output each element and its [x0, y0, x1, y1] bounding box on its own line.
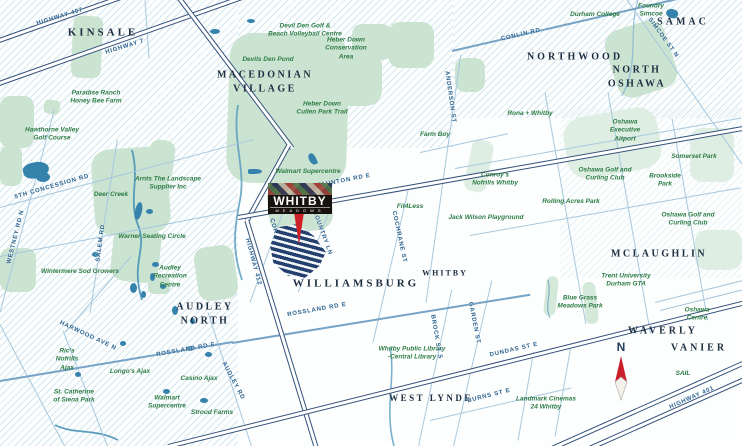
poi-label-heber-down-trail: Heber Down Cullen Park Trail	[296, 101, 347, 118]
poi-label-hawthorne-valley: Hawthorne Valley Golf Course	[25, 127, 79, 144]
poi-label-rolling-acres: Rolling Acres Park	[542, 198, 600, 206]
poi-label-fit4less: Fit4Less	[397, 203, 423, 211]
compass-north-label: N	[606, 340, 636, 354]
logo-title: WHITBY	[268, 195, 332, 207]
poi-label-trent-university: Trent University Durham GTA	[601, 273, 650, 290]
poi-label-sail: SAIL	[676, 370, 691, 378]
poi-label-devils-den-pond: Devils Den Pond	[242, 56, 293, 64]
pond	[36, 172, 50, 182]
area-label-north-oshawa: NORTH OSHAWA	[585, 64, 690, 91]
map-canvas: KINSALE MACEDONIAN VILLAGE NORTHWOOD NOR…	[0, 0, 742, 446]
poi-label-warner-seating: Warner Seating Circle	[118, 233, 185, 241]
poi-label-paradise-ranch: Paradise Ranch Honey Bee Farm	[70, 90, 121, 107]
poi-label-landmark-cinemas: Landmark Cinemas 24 Whitby	[516, 396, 576, 413]
poi-label-audley-recreation: Audley Recreation Centre	[153, 264, 187, 289]
logo-subtitle: MEADOWS	[270, 207, 330, 214]
area-label-macedonian-village: MACEDONIAN VILLAGE	[217, 69, 313, 96]
poi-label-jack-wilson: Jack Wilson Playground	[448, 214, 523, 222]
poi-label-walmart-south: Walmart Supercentre	[148, 395, 186, 412]
poi-label-wintermere: Wintermere Sod Growers	[41, 268, 119, 276]
pond	[163, 389, 170, 394]
poi-label-oshawa-golf-south: Oshawa Golf and Curling Club	[661, 212, 714, 229]
pond	[200, 398, 208, 403]
poi-label-brookside-park: Brookside Park	[649, 173, 681, 190]
poi-label-durham-college: Durham College	[570, 11, 620, 19]
poi-label-longos: Longo's Ajax	[110, 368, 150, 376]
poi-label-deer-creek: Deer Creek	[94, 191, 128, 199]
area-label-northwood: NORTHWOOD	[527, 50, 623, 64]
poi-label-rona: Rona + Whitby	[507, 110, 552, 118]
poi-label-blue-grass: Blue Grass Meadows Park	[557, 295, 602, 312]
pond	[205, 352, 212, 357]
poi-label-rics-nofrills: Ric's Nofrills Ajax	[56, 347, 78, 372]
area-label-samac: SAMAC	[657, 15, 709, 29]
poi-label-st-catherine: St. Catherine of Siena Park	[53, 389, 94, 406]
area-label-waverly: WAVERLY	[628, 324, 698, 338]
poi-label-walmart-north: Walmart Supercentre	[275, 168, 340, 176]
location-pin-icon	[294, 212, 304, 245]
poi-label-casino-ajax: Casino Ajax	[181, 375, 218, 383]
stream-icon	[248, 169, 262, 174]
poi-label-oshawa-centre: Oshawa Centre	[675, 307, 720, 324]
logo-whitby-meadows: WHITBY MEADOWS	[268, 183, 332, 214]
area-label-mclaughlin: MCLAUGHLIN	[611, 247, 707, 261]
area-label-west-lynde: WEST LYNDE	[389, 392, 473, 404]
area-label-kinsale: KINSALE	[68, 26, 139, 41]
pond	[130, 283, 137, 293]
pond	[146, 209, 153, 214]
pond	[210, 29, 220, 34]
poi-label-oshawa-golf-north: Oshawa Golf and Curling Club	[578, 167, 631, 184]
compass-needle-icon	[608, 354, 634, 402]
area-label-audley-north: AUDLEY NORTH	[176, 301, 233, 328]
poi-label-conroys-nofrills: Conroy's Nofrills Whitby	[472, 172, 518, 189]
area-label-whitby: WHITBY	[422, 269, 468, 280]
pond	[75, 372, 81, 377]
pond	[120, 341, 126, 346]
poi-label-stroud-farms: Stroud Farms	[191, 409, 233, 417]
poi-label-oshawa-executive: Oshawa Executive Aitport	[610, 118, 640, 143]
poi-label-heber-down-conservation: Heber Down Conservation Area	[325, 36, 367, 61]
pond	[247, 19, 255, 23]
poi-label-farm-boy: Farm Boy	[420, 131, 450, 139]
pond	[141, 291, 146, 298]
area-label-vanier: VANIER	[671, 341, 727, 355]
area-label-williamsburg: WILLIAMSBURG	[293, 277, 419, 292]
poi-label-somerset-park: Somerset Park	[671, 153, 717, 161]
poi-label-arnts-landscape: Arnts The Landscape Supplier Inc	[135, 176, 201, 193]
compass: N	[606, 340, 636, 402]
